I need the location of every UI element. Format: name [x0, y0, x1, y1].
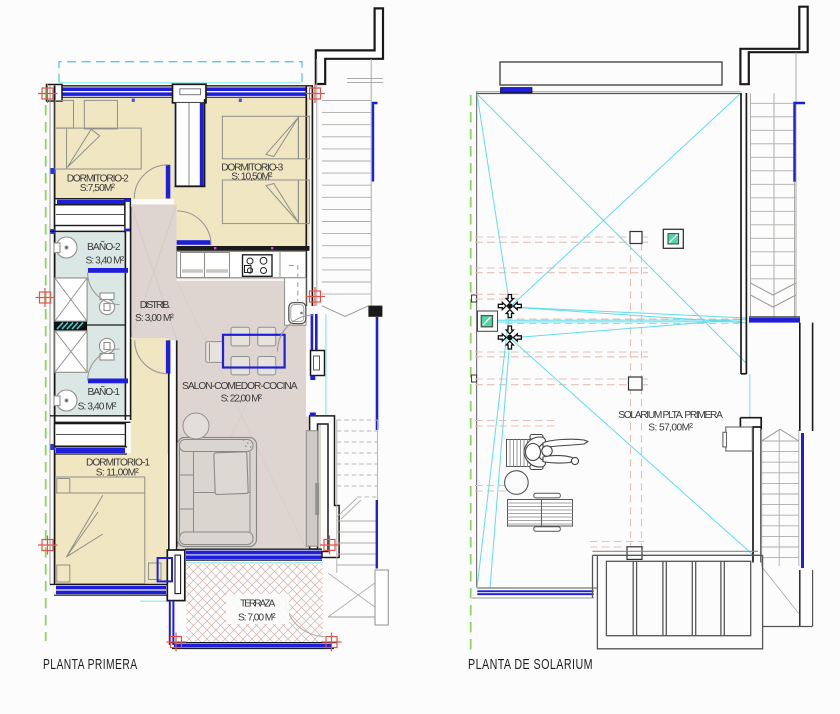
svg-text:S: 57,00M²: S: 57,00M²	[648, 423, 693, 434]
svg-text:S: 3,40 M²: S: 3,40 M²	[86, 256, 125, 267]
svg-text:S:7,50M²: S:7,50M²	[80, 183, 116, 194]
svg-text:S: 10,50M²: S: 10,50M²	[231, 172, 273, 183]
svg-text:BAÑO-2: BAÑO-2	[87, 240, 121, 253]
svg-text:S: 22,00 M²: S: 22,00 M²	[221, 394, 263, 405]
svg-text:S: 3,40 M²: S: 3,40 M²	[78, 402, 117, 413]
svg-text:S: 3,00 M²: S: 3,00 M²	[135, 313, 174, 324]
svg-text:S: 7,00 M²: S: 7,00 M²	[238, 613, 276, 624]
svg-text:PLANTA PRIMERA: PLANTA PRIMERA	[43, 657, 138, 673]
svg-text:BAÑO-1: BAÑO-1	[88, 385, 121, 398]
svg-text:TERRAZA: TERRAZA	[240, 599, 276, 610]
svg-text:SALON-COMEDOR-COCINA: SALON-COMEDOR-COCINA	[182, 381, 298, 392]
svg-text:PLANTA DE SOLARIUM: PLANTA DE SOLARIUM	[468, 657, 593, 673]
svg-text:SOLARIUM PLTA. PRIMERA: SOLARIUM PLTA. PRIMERA	[618, 410, 723, 421]
svg-text:DISTRIB.: DISTRIB.	[140, 300, 171, 311]
svg-text:S: 11,00M²: S: 11,00M²	[96, 468, 140, 479]
